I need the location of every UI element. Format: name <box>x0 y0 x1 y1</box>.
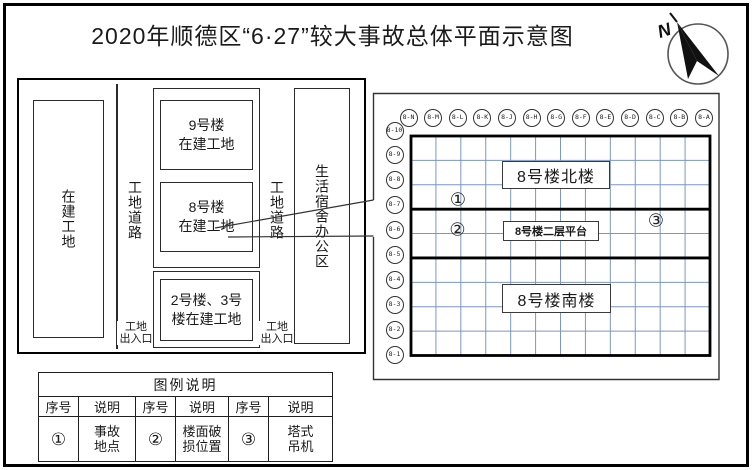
marker-2: ② <box>449 219 465 240</box>
building-8-box: 8号楼 在建工地 <box>160 182 253 252</box>
column-label-8-J: 8-J <box>498 109 516 127</box>
legend-header-cell: 序号 <box>136 397 176 417</box>
area-under-construction: 在建工地 <box>33 100 104 338</box>
building-9-box: 9号楼 在建工地 <box>160 100 253 170</box>
gate-left-label: 工地 出入口 <box>117 321 155 345</box>
row-label-8-2: 8-2 <box>386 321 404 339</box>
row-label-8-10: 8-10 <box>386 122 404 140</box>
legend-desc-2: 楼面破 损位置 <box>176 417 229 462</box>
row-label-8-3: 8-3 <box>386 296 404 314</box>
south-building-label: 8号楼南楼 <box>502 284 611 313</box>
column-label-8-F: 8-F <box>572 109 590 127</box>
road-line <box>116 84 118 349</box>
north-building-label: 8号楼北楼 <box>502 161 610 189</box>
diagram-canvas: 2020年顺德区“6·27”较大事故总体平面示意图 N 在建工地 工地道路 工地… <box>0 0 752 470</box>
legend-symbol-3: ③ <box>229 417 269 462</box>
column-label-8-C: 8-C <box>646 109 664 127</box>
row-label-8-4: 8-4 <box>386 271 404 289</box>
legend-header-cell: 说明 <box>176 397 229 417</box>
legend-table: 图例说明 序号 说明 序号 说明 序号 说明 ① 事故 地点 ② 楼面破 损位置… <box>38 372 333 462</box>
legend-header-cell: 说明 <box>269 397 333 417</box>
legend-desc-3: 塔式 吊机 <box>269 417 333 462</box>
road-right-label: 工地道路 <box>266 180 288 240</box>
legend-header-cell: 序号 <box>229 397 269 417</box>
row-label-8-6: 8-6 <box>386 221 404 239</box>
column-label-8-D: 8-D <box>621 109 639 127</box>
marker-1: ① <box>450 189 466 210</box>
legend-header-cell: 说明 <box>79 397 136 417</box>
column-label-8-L: 8-L <box>449 109 467 127</box>
marker-3: ③ <box>648 210 664 231</box>
row-label-8-7: 8-7 <box>386 196 404 214</box>
row-label-8-5: 8-5 <box>386 246 404 264</box>
column-label-8-H: 8-H <box>523 109 541 127</box>
gate-right-label: 工地 出入口 <box>258 321 296 345</box>
platform-label: 8号楼二层平台 <box>503 221 599 241</box>
column-label-8-A: 8-A <box>695 109 713 127</box>
legend-header-cell: 序号 <box>39 397 79 417</box>
row-label-8-1: 8-1 <box>386 346 404 364</box>
building-2-3-box: 2号楼、3号 楼在建工地 <box>160 279 253 341</box>
living-quarters-office-area: 生活宿舍办公区 <box>294 88 350 344</box>
row-label-8-9: 8-9 <box>386 146 404 164</box>
road-left-label: 工地道路 <box>124 180 146 240</box>
column-label-8-N: 8-N <box>400 109 418 127</box>
row-label-8-8: 8-8 <box>386 171 404 189</box>
column-label-8-M: 8-M <box>424 109 442 127</box>
legend-desc-1: 事故 地点 <box>79 417 136 462</box>
legend-title: 图例说明 <box>39 373 333 397</box>
legend-symbol-1: ① <box>39 417 79 462</box>
page-title: 2020年顺德区“6·27”较大事故总体平面示意图 <box>60 17 605 51</box>
legend-symbol-2: ② <box>136 417 176 462</box>
